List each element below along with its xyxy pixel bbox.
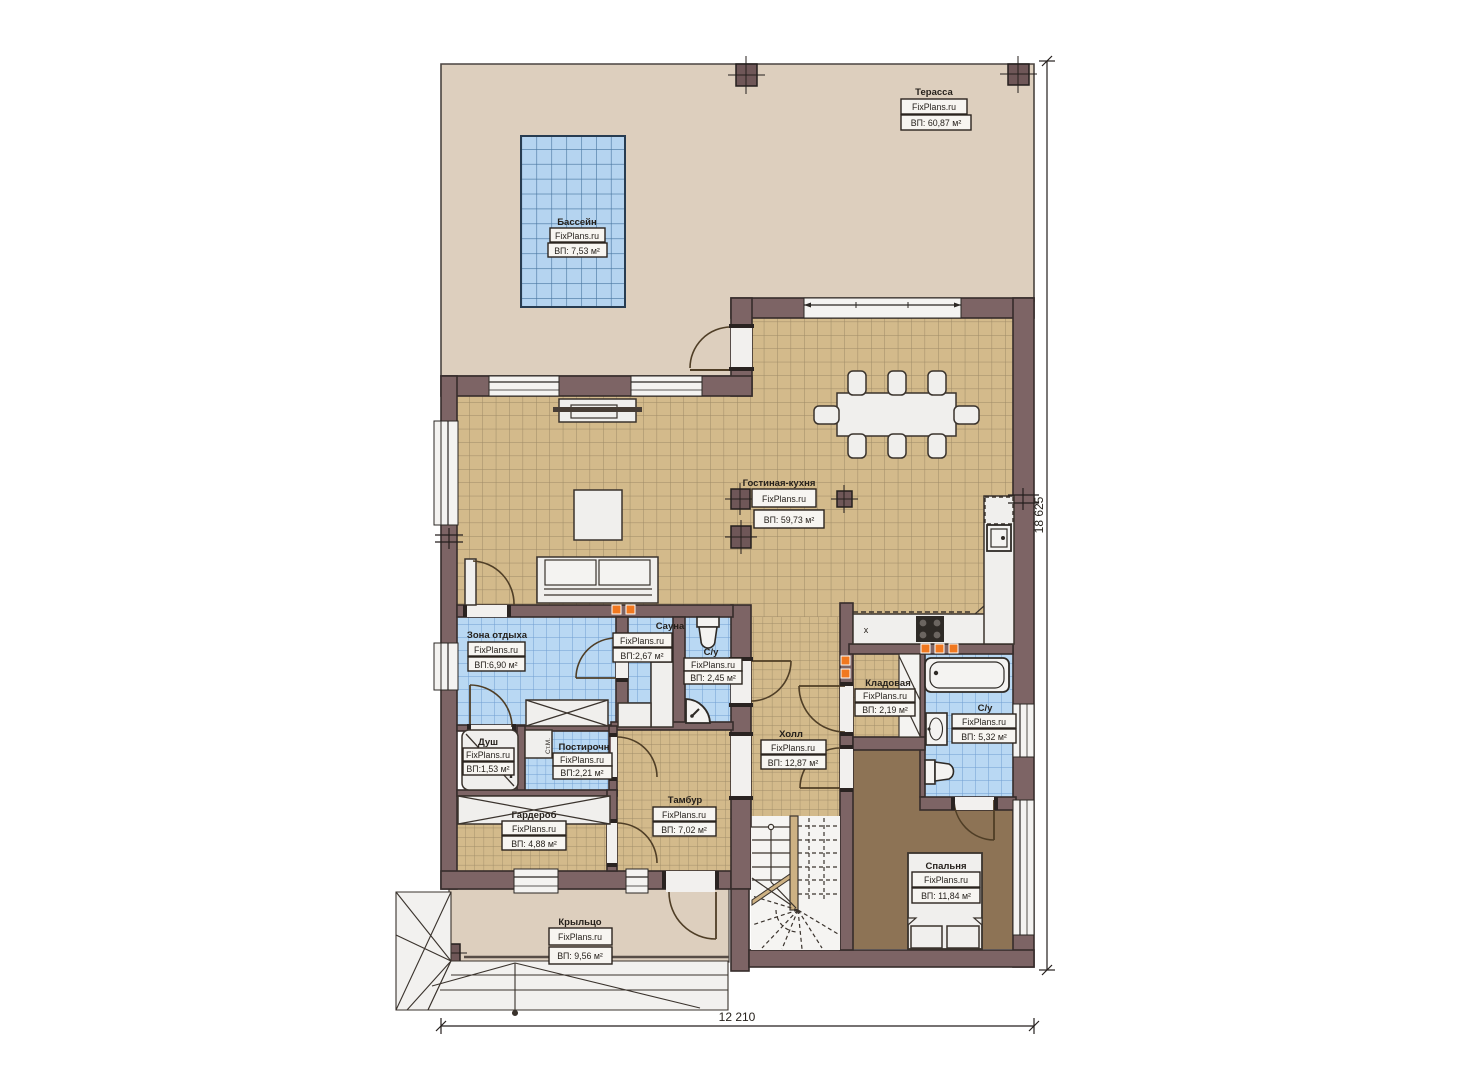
svg-text:18 625: 18 625 — [1032, 496, 1046, 533]
svg-text:Тамбур: Тамбур — [668, 795, 703, 806]
svg-text:ВП: 7,02 м²: ВП: 7,02 м² — [661, 825, 707, 835]
svg-text:FixPlans.ru: FixPlans.ru — [762, 494, 806, 504]
svg-text:ВП: 4,88 м²: ВП: 4,88 м² — [511, 839, 557, 849]
svg-text:x: x — [864, 625, 869, 635]
svg-text:ВП: 7,53 м²: ВП: 7,53 м² — [554, 246, 600, 256]
svg-text:FixPlans.ru: FixPlans.ru — [912, 102, 956, 112]
svg-text:Душ: Душ — [478, 737, 498, 748]
svg-text:С/у: С/у — [704, 647, 720, 658]
svg-text:Спальня: Спальня — [925, 861, 966, 872]
svg-text:FixPlans.ru: FixPlans.ru — [662, 810, 706, 820]
svg-text:Зона отдыха: Зона отдыха — [467, 630, 528, 641]
svg-text:Бассейн: Бассейн — [557, 217, 597, 228]
svg-text:FixPlans.ru: FixPlans.ru — [555, 231, 599, 241]
svg-text:ВП: 60,87 м²: ВП: 60,87 м² — [911, 118, 962, 128]
svg-text:Гардероб: Гардероб — [512, 810, 557, 821]
svg-text:Постирочн: Постирочн — [559, 742, 610, 753]
svg-text:FixPlans.ru: FixPlans.ru — [474, 645, 518, 655]
svg-text:ВП: 2,45 м²: ВП: 2,45 м² — [690, 673, 736, 683]
svg-text:ВП: 59,73 м²: ВП: 59,73 м² — [764, 515, 815, 525]
svg-text:FixPlans.ru: FixPlans.ru — [863, 691, 907, 701]
svg-text:Крыльцо: Крыльцо — [558, 917, 601, 928]
svg-text:FixPlans.ru: FixPlans.ru — [924, 875, 968, 885]
svg-text:ВП:1,53 м²: ВП:1,53 м² — [466, 764, 509, 774]
svg-text:ВП: 11,84 м²: ВП: 11,84 м² — [921, 891, 971, 901]
svg-text:Терасса: Терасса — [915, 87, 953, 98]
svg-text:ВП:2,21 м²: ВП:2,21 м² — [560, 768, 603, 778]
svg-text:Кладовая: Кладовая — [865, 678, 911, 689]
svg-text:С/у: С/у — [978, 703, 994, 714]
svg-text:FixPlans.ru: FixPlans.ru — [771, 743, 815, 753]
svg-text:ВП:6,90 м²: ВП:6,90 м² — [474, 660, 517, 670]
svg-text:FixPlans.ru: FixPlans.ru — [691, 660, 735, 670]
svg-text:ВП: 5,32 м²: ВП: 5,32 м² — [961, 732, 1007, 742]
svg-text:Холл: Холл — [779, 729, 803, 740]
svg-text:12 210: 12 210 — [719, 1010, 756, 1024]
svg-text:FixPlans.ru: FixPlans.ru — [512, 824, 556, 834]
svg-text:FixPlans.ru: FixPlans.ru — [558, 932, 602, 942]
svg-text:Гостиная-кухня: Гостиная-кухня — [743, 478, 816, 489]
svg-text:FixPlans.ru: FixPlans.ru — [962, 717, 1006, 727]
svg-text:ВП:2,67 м²: ВП:2,67 м² — [620, 651, 663, 661]
svg-text:FixPlans.ru: FixPlans.ru — [620, 636, 664, 646]
svg-text:FixPlans.ru: FixPlans.ru — [560, 755, 604, 765]
svg-text:FixPlans.ru: FixPlans.ru — [466, 750, 510, 760]
svg-text:Сауна: Сауна — [656, 621, 685, 632]
svg-text:ВП: 12,87 м²: ВП: 12,87 м² — [768, 758, 819, 768]
svg-text:ВП: 2,19 м²: ВП: 2,19 м² — [862, 705, 908, 715]
svg-text:ВП: 9,56 м²: ВП: 9,56 м² — [557, 951, 603, 961]
svg-text:Ст.М.: Ст.М. — [545, 738, 552, 754]
